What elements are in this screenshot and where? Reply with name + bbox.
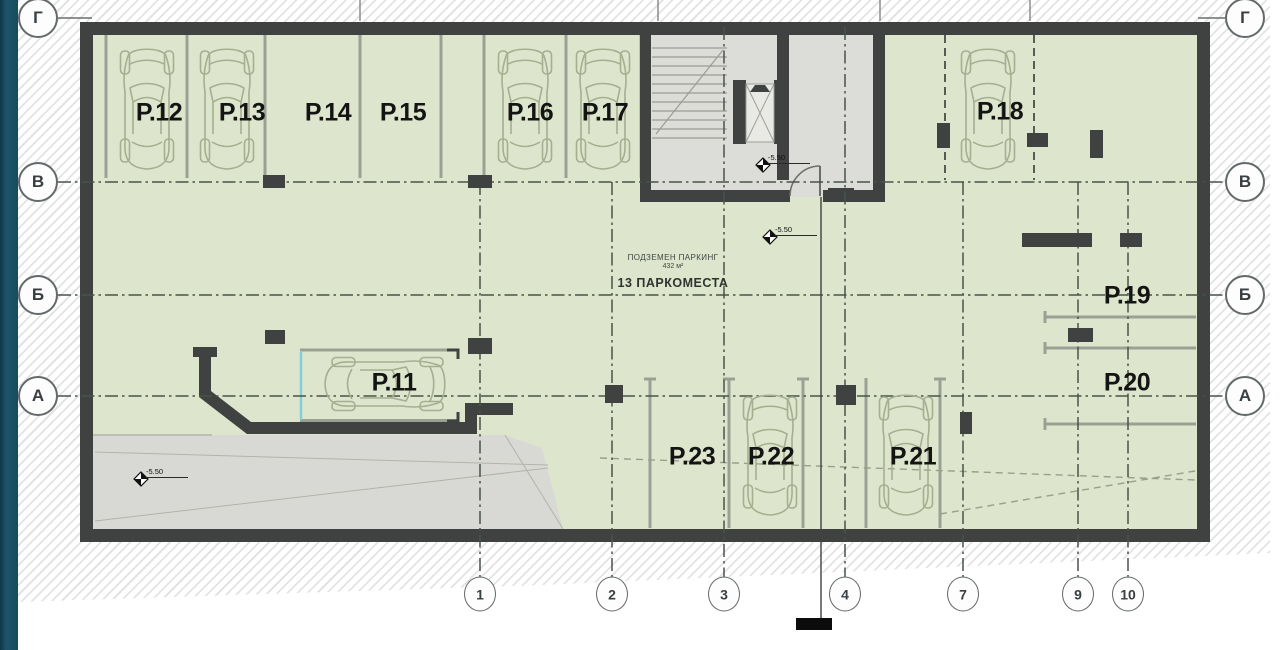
area-info-text: ПОДЗЕМЕН ПАРКИНГ 432 м² 13 ПАРКОМЕСТА: [618, 253, 729, 290]
info-title: ПОДЗЕМЕН ПАРКИНГ: [618, 253, 729, 262]
top-edge-ticks: [360, 0, 1030, 21]
info-area-value: 432 м²: [618, 263, 729, 270]
info-spot-count: 13 ПАРКОМЕСТА: [618, 276, 729, 290]
plan-drawing: [0, 0, 1280, 650]
ramp-area: [93, 435, 563, 529]
wall-segment: [1022, 233, 1092, 247]
floor-plan-canvas: P.11P.12P.13P.14P.15P.16P.17P.18P.19P.20…: [0, 0, 1280, 650]
